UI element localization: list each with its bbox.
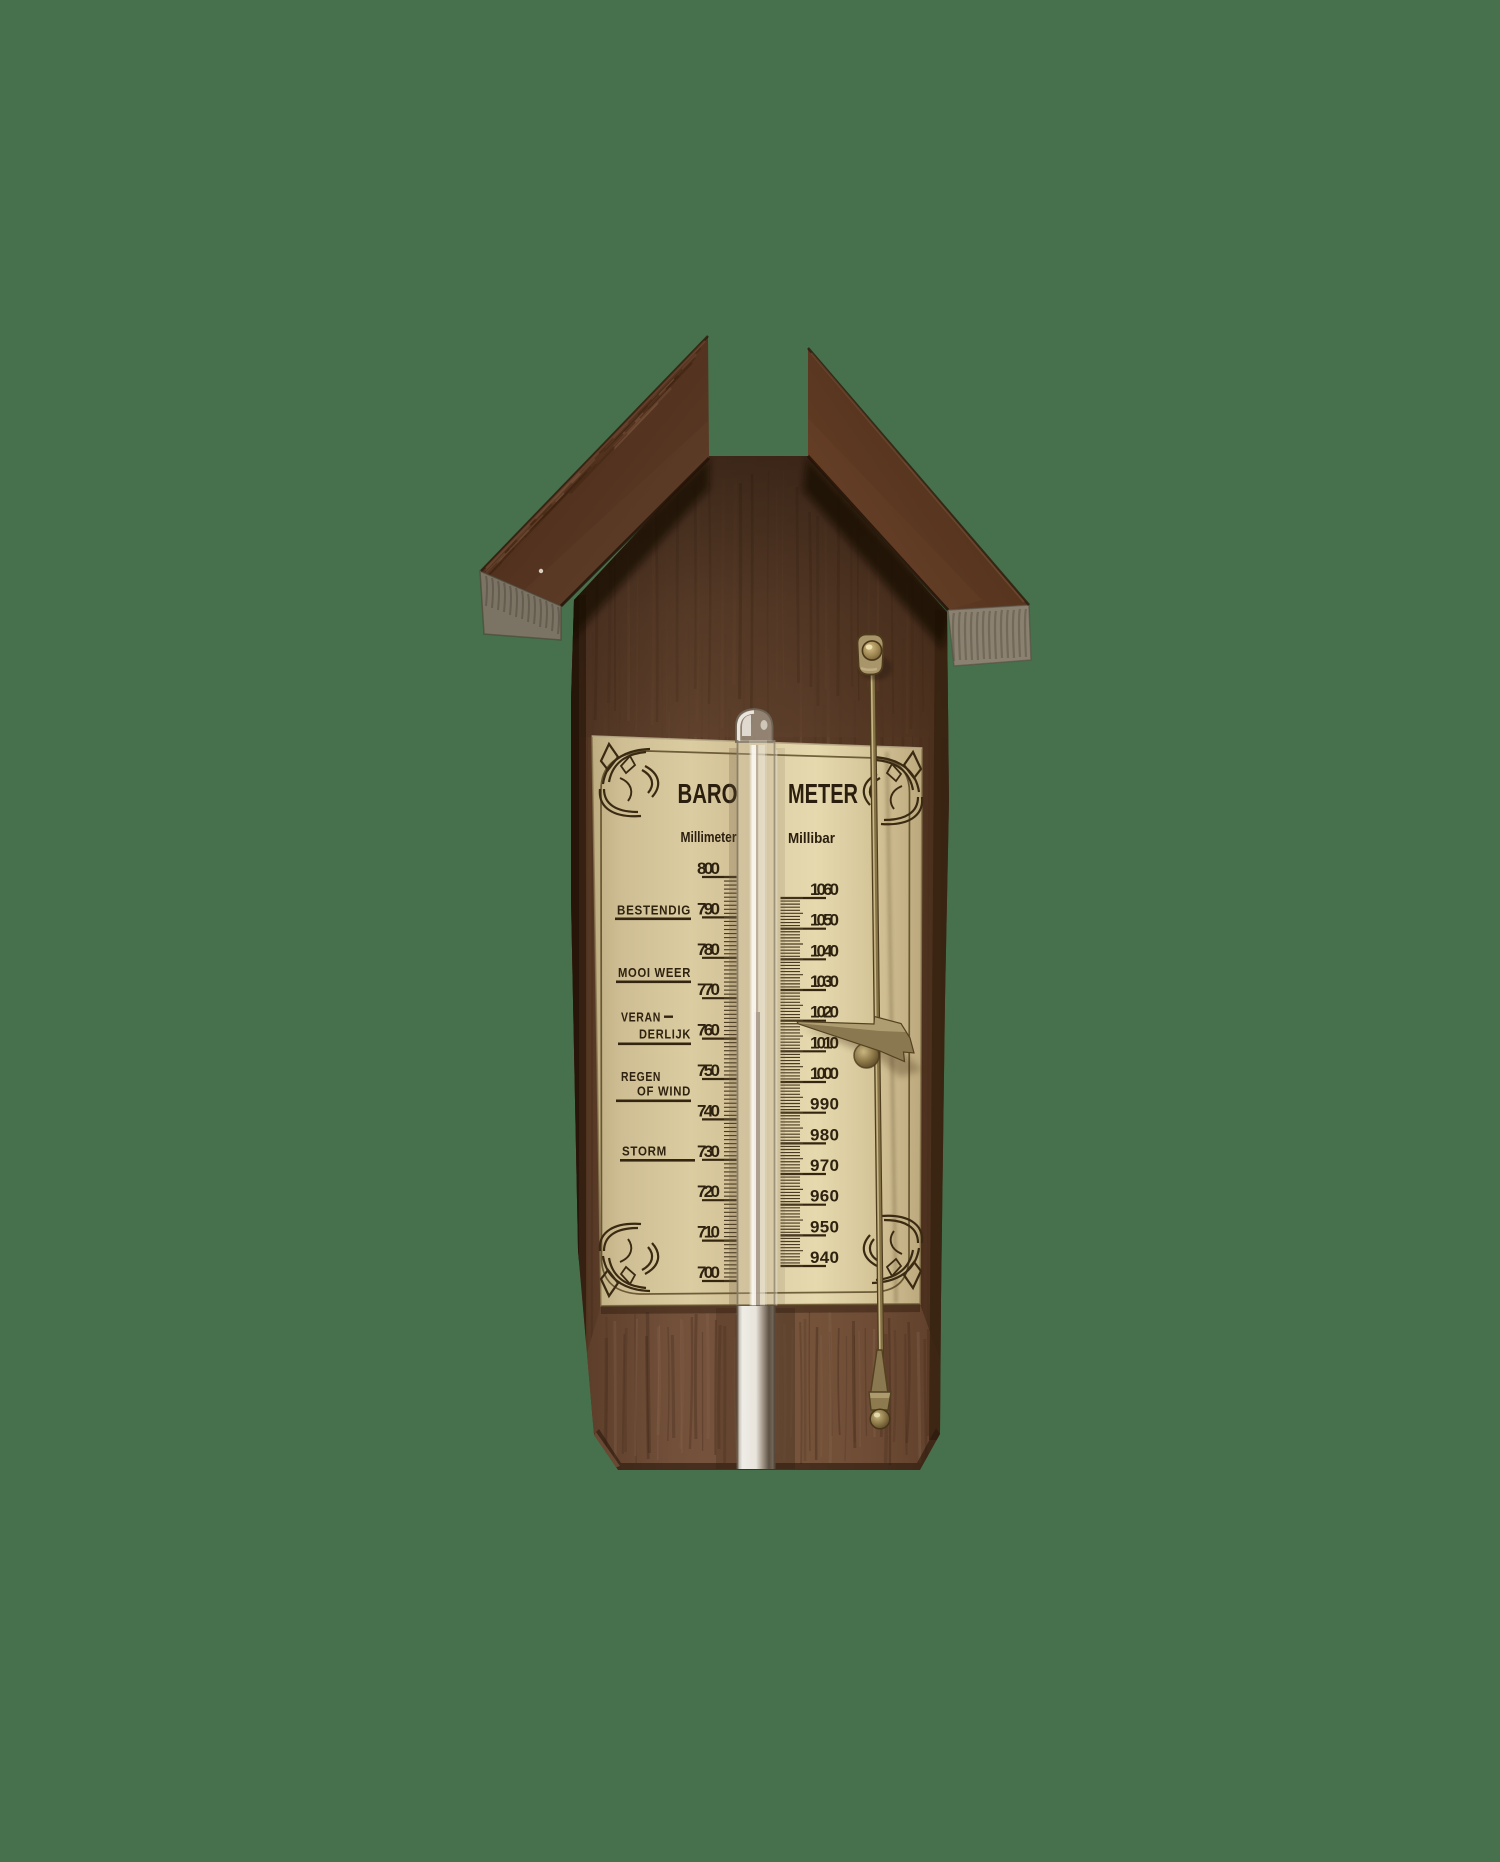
svg-text:1000: 1000 — [810, 1064, 839, 1083]
svg-text:730: 730 — [697, 1142, 720, 1161]
svg-text:780: 780 — [697, 940, 720, 959]
svg-text:1060: 1060 — [810, 880, 839, 899]
svg-text:BARO: BARO — [678, 778, 738, 809]
svg-text:BESTENDIG: BESTENDIG — [617, 903, 691, 918]
svg-text:750: 750 — [697, 1061, 720, 1080]
svg-text:1020: 1020 — [810, 1003, 839, 1022]
svg-text:720: 720 — [697, 1182, 720, 1201]
svg-text:980: 980 — [810, 1125, 839, 1144]
svg-text:770: 770 — [697, 980, 720, 999]
svg-text:Millibar: Millibar — [788, 830, 835, 847]
svg-text:DERLIJK: DERLIJK — [639, 1027, 691, 1042]
svg-text:960: 960 — [810, 1187, 839, 1206]
svg-text:940: 940 — [810, 1248, 839, 1267]
svg-text:970: 970 — [810, 1156, 839, 1175]
svg-text:Millimeter: Millimeter — [681, 829, 737, 846]
svg-text:VERAN: VERAN — [621, 1010, 661, 1025]
svg-text:REGEN: REGEN — [621, 1069, 661, 1084]
svg-text:800: 800 — [697, 859, 720, 878]
svg-text:760: 760 — [697, 1021, 720, 1040]
svg-text:STORM: STORM — [622, 1144, 667, 1159]
svg-text:710: 710 — [697, 1223, 720, 1242]
svg-text:990: 990 — [810, 1095, 839, 1114]
svg-text:MOOI WEER: MOOI WEER — [618, 965, 691, 980]
svg-text:700: 700 — [697, 1263, 720, 1282]
svg-text:1030: 1030 — [810, 972, 839, 991]
svg-text:740: 740 — [697, 1101, 720, 1120]
svg-text:790: 790 — [697, 899, 720, 918]
svg-text:1050: 1050 — [810, 911, 839, 930]
svg-text:1040: 1040 — [810, 941, 839, 960]
svg-text:METER: METER — [788, 778, 858, 809]
svg-text:OF WIND: OF WIND — [637, 1084, 691, 1099]
svg-text:950: 950 — [810, 1217, 839, 1236]
